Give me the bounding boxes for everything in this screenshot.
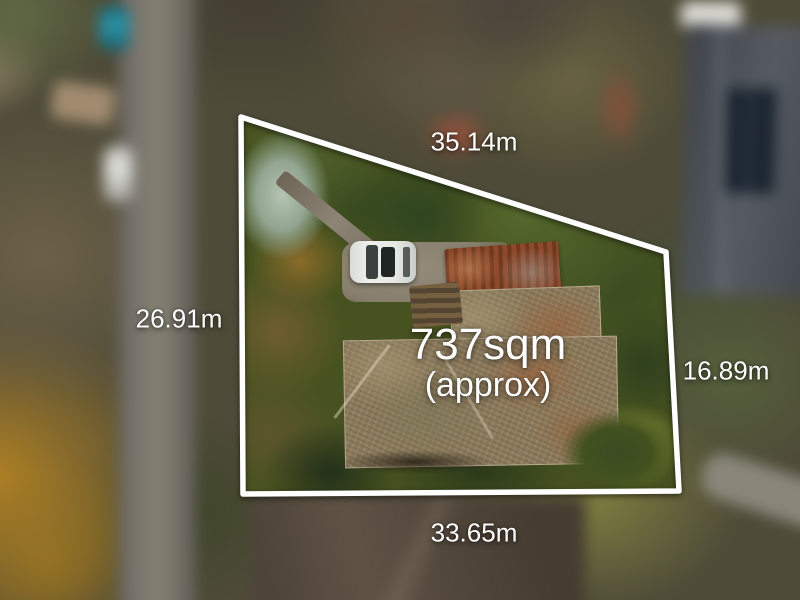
dimension-label-left: 26.91m [136, 304, 223, 335]
dimension-label-right: 16.89m [683, 356, 770, 387]
property-boundary-outline [0, 0, 800, 600]
dimension-label-top: 35.14m [431, 127, 518, 158]
aerial-property-screenshot: 35.14m 26.91m 16.89m 33.65m 737sqm (appr… [0, 0, 800, 600]
dimension-label-bottom: 33.65m [431, 518, 518, 549]
area-label: 737sqm (approx) [410, 323, 567, 403]
area-qualifier: (approx) [410, 368, 567, 403]
area-value: 737sqm [410, 323, 567, 368]
